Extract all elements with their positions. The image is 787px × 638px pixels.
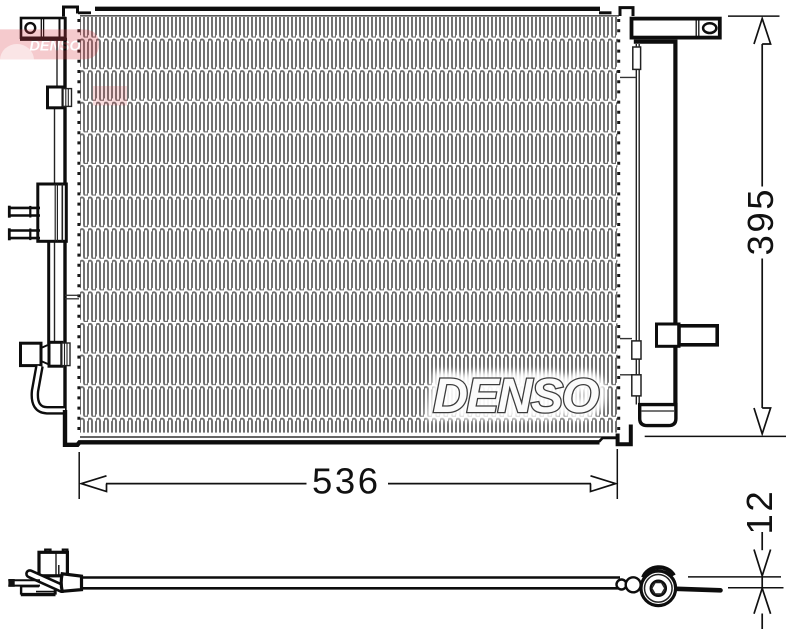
svg-text:DENSO: DENSO: [433, 369, 599, 423]
svg-text:395: 395: [740, 187, 781, 256]
svg-text:536: 536: [312, 461, 381, 502]
svg-text:12: 12: [739, 489, 780, 535]
